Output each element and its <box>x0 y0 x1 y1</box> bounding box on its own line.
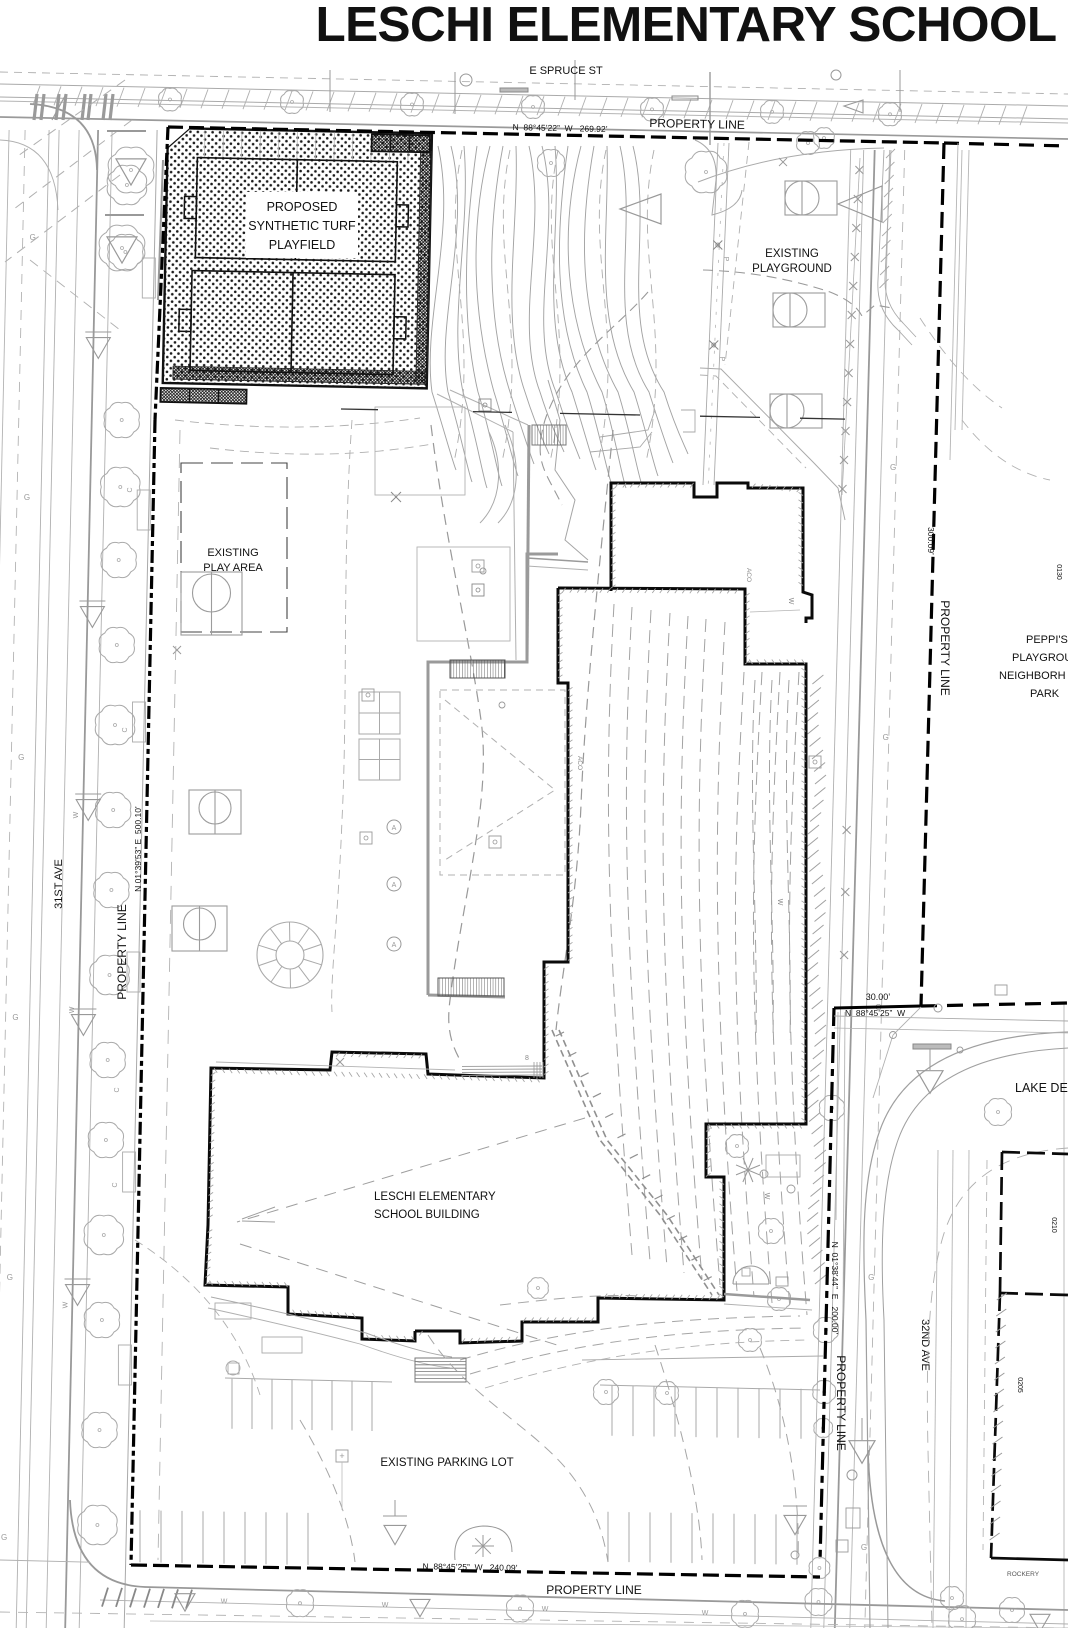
svg-text:SYNTHETIC TURF: SYNTHETIC TURF <box>248 219 356 233</box>
svg-text:W: W <box>221 1598 228 1605</box>
svg-text:0210: 0210 <box>1050 1217 1057 1233</box>
svg-text:N 88°45’25” W 240.09’: N 88°45’25” W 240.09’ <box>422 1561 517 1572</box>
svg-text:N 01°38’44” E 200.00’: N 01°38’44” E 200.00’ <box>830 1242 840 1335</box>
svg-text:C: C <box>127 487 134 492</box>
svg-text:PEPPI'S: PEPPI'S <box>1026 634 1068 646</box>
svg-text:0205: 0205 <box>1016 1377 1023 1393</box>
svg-text:G: G <box>1 1533 7 1542</box>
svg-text:W: W <box>382 1602 389 1609</box>
svg-text:N 88°45’22” W 269.92’: N 88°45’22” W 269.92’ <box>512 122 607 134</box>
svg-text:G: G <box>883 733 889 742</box>
svg-text:G: G <box>24 493 30 502</box>
svg-text:P: P <box>722 257 729 262</box>
svg-text:C: C <box>122 727 129 732</box>
svg-text:ROCKERY: ROCKERY <box>1007 1571 1040 1578</box>
svg-text:31ST AVE: 31ST AVE <box>53 859 65 909</box>
svg-text:LESCHI ELEMENTARY SCHOOL: LESCHI ELEMENTARY SCHOOL <box>316 0 1057 52</box>
svg-text:N 01°39’53” E 500.10’: N 01°39’53” E 500.10’ <box>133 806 143 892</box>
svg-text:PLAYGROUND: PLAYGROUND <box>752 263 832 275</box>
svg-text:G: G <box>18 753 24 762</box>
svg-text:A: A <box>392 882 397 889</box>
svg-text:PROPERTY LINE: PROPERTY LINE <box>649 116 745 132</box>
svg-text:EXISTING PARKING LOT: EXISTING PARKING LOT <box>380 1457 513 1469</box>
svg-text:PROPOSED: PROPOSED <box>267 200 338 214</box>
svg-text:PROPERTY LINE: PROPERTY LINE <box>938 600 952 696</box>
svg-text:P: P <box>718 357 725 362</box>
svg-text:EXISTING: EXISTING <box>765 248 819 260</box>
svg-text:30.00’: 30.00’ <box>866 992 891 1002</box>
svg-text:G: G <box>890 463 896 472</box>
svg-text:ACO: ACO <box>576 756 583 770</box>
svg-text:G: G <box>868 1273 874 1282</box>
svg-text:W: W <box>69 1006 76 1013</box>
svg-text:0130: 0130 <box>1055 564 1062 580</box>
svg-text:PROPERTY LINE: PROPERTY LINE <box>115 904 129 1000</box>
svg-text:W: W <box>787 598 794 605</box>
svg-text:LESCHI ELEMENTARY: LESCHI ELEMENTARY <box>374 1191 496 1203</box>
svg-text:PROPERTY LINE: PROPERTY LINE <box>546 1583 642 1597</box>
svg-text:G: G <box>861 1543 867 1552</box>
svg-text:W: W <box>542 1606 549 1613</box>
svg-text:PARK: PARK <box>1030 688 1060 700</box>
svg-text:W: W <box>763 1193 770 1200</box>
svg-text:W: W <box>73 811 80 818</box>
svg-text:NEIGHBORH: NEIGHBORH <box>999 670 1066 682</box>
svg-text:8: 8 <box>525 1055 529 1062</box>
svg-text:32ND AVE: 32ND AVE <box>919 1319 931 1371</box>
svg-text:W: W <box>776 899 783 906</box>
svg-text:G: G <box>7 1273 13 1282</box>
svg-text:PLAYFIELD: PLAYFIELD <box>269 238 335 252</box>
svg-text:A: A <box>392 825 397 832</box>
svg-text:300.09’: 300.09’ <box>926 527 936 555</box>
svg-text:EXISTING: EXISTING <box>207 547 258 559</box>
svg-text:A: A <box>392 942 397 949</box>
svg-text:C: C <box>114 1087 121 1092</box>
svg-text:PROPERTY LINE: PROPERTY LINE <box>834 1355 848 1451</box>
svg-text:G: G <box>12 1013 18 1022</box>
svg-text:C: C <box>112 1182 119 1187</box>
svg-text:ACO: ACO <box>745 568 752 582</box>
svg-text:LAKE DELL: LAKE DELL <box>1015 1081 1068 1095</box>
svg-text:+: + <box>339 1451 344 1461</box>
svg-text:SCHOOL BUILDING: SCHOOL BUILDING <box>374 1209 480 1221</box>
svg-text:E SPRUCE ST: E SPRUCE ST <box>529 65 603 77</box>
svg-text:W: W <box>62 1301 69 1308</box>
svg-text:W: W <box>702 1610 709 1617</box>
svg-text:PLAYGROUN: PLAYGROUN <box>1012 652 1068 664</box>
